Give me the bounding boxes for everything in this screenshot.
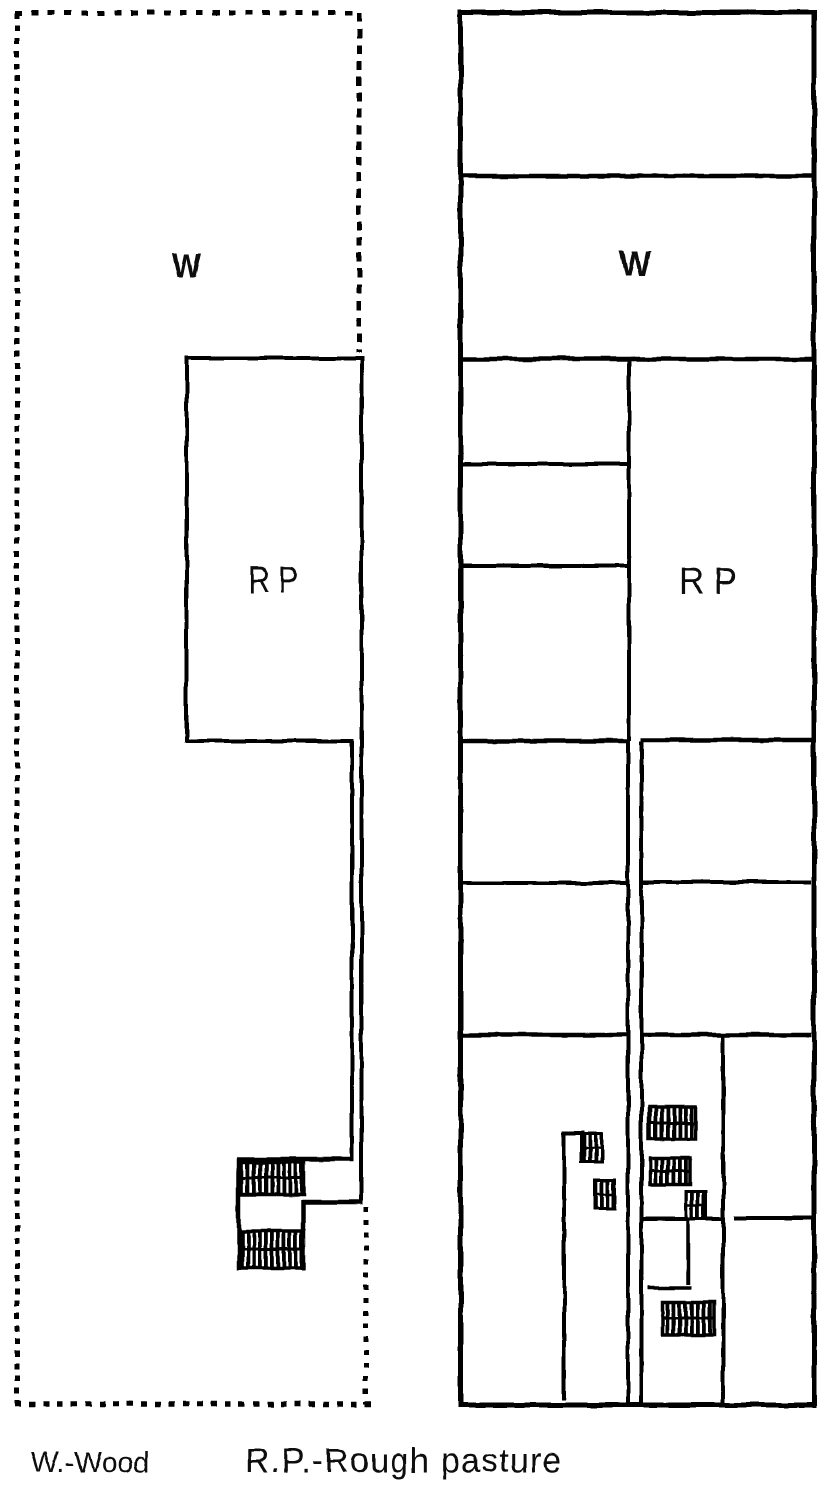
svg-text:W.-Wood: W.-Wood (31, 1447, 150, 1479)
svg-text:R P: R P (248, 560, 298, 602)
svg-text:R P: R P (679, 561, 737, 603)
svg-text:R.P.-Rough pasture: R.P.-Rough pasture (245, 1442, 563, 1480)
svg-text:W: W (172, 247, 202, 285)
svg-text:W: W (619, 243, 651, 284)
